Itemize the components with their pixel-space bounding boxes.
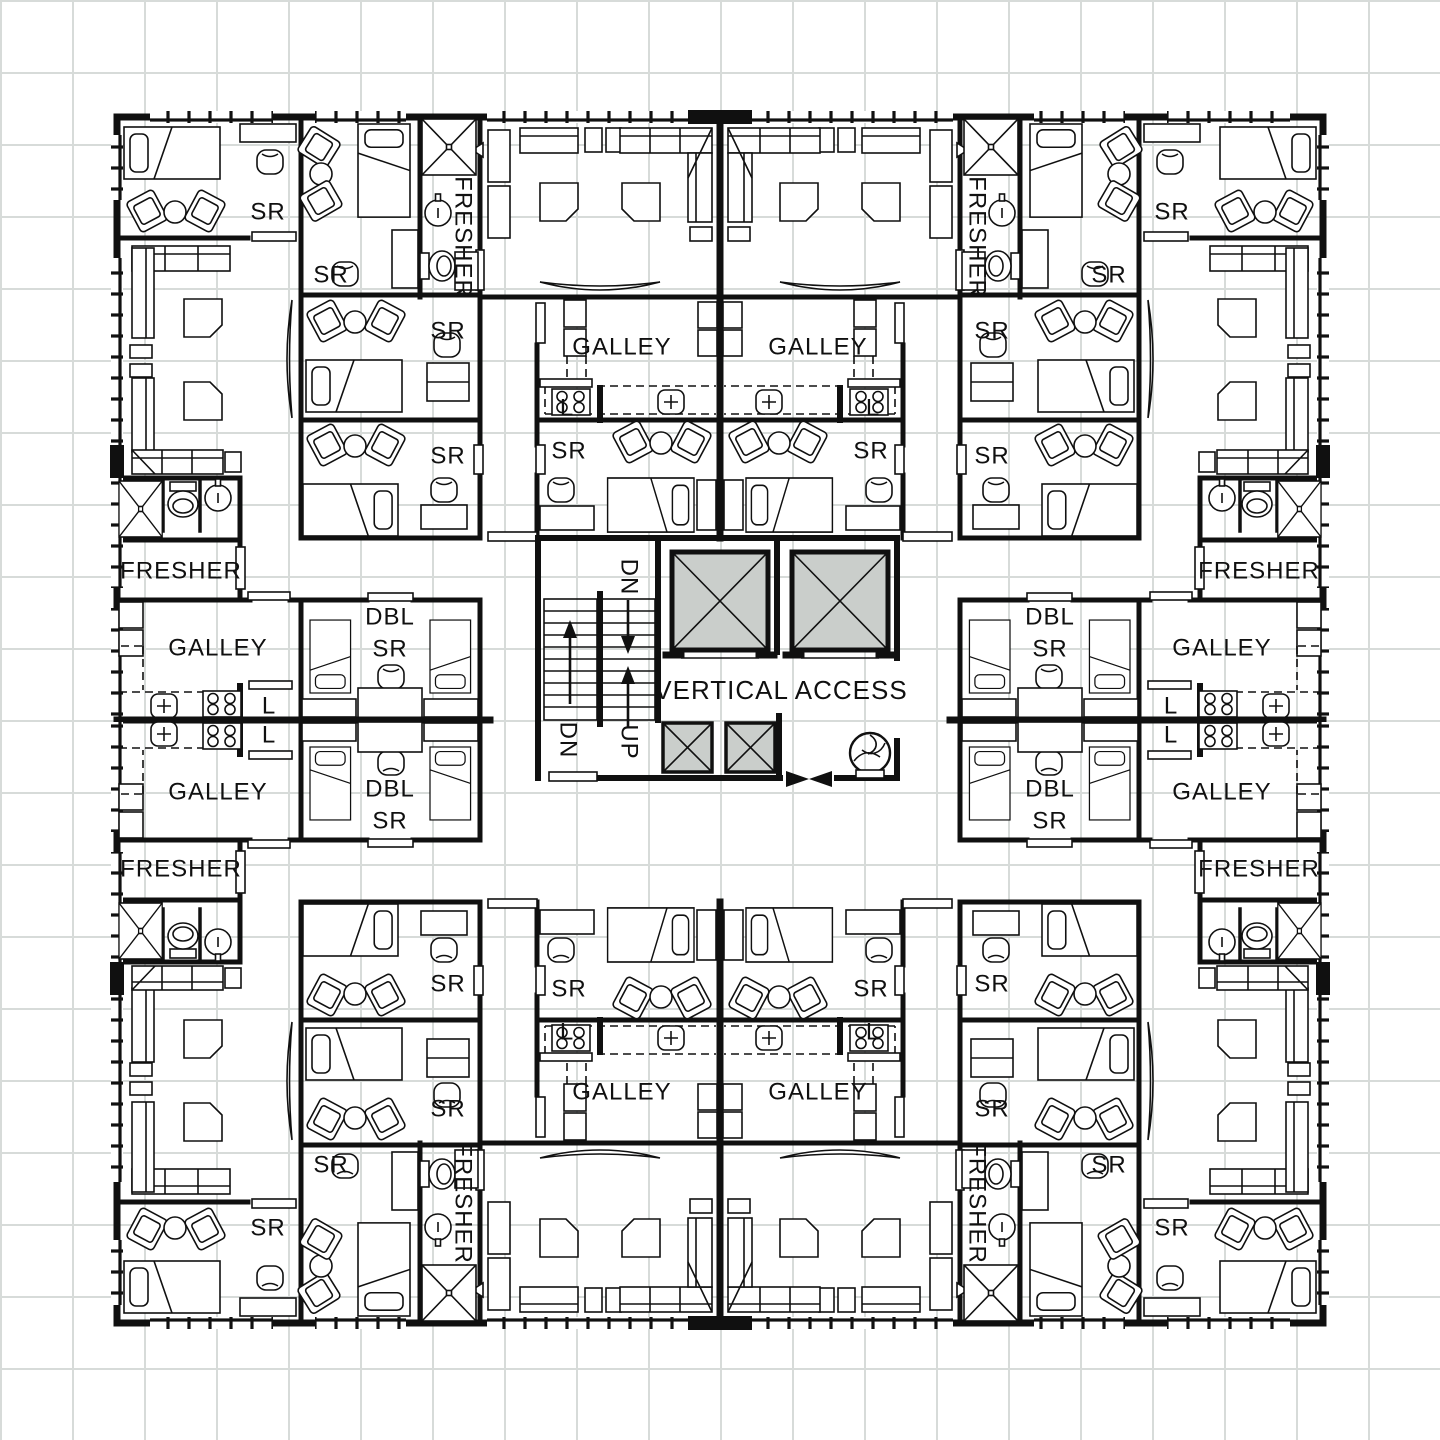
label-dbl: DBL [365,776,415,803]
label-l: L [262,722,276,749]
stove-icon [203,691,241,717]
label-sr: SR [1154,199,1189,226]
label-dn: DN [616,559,643,596]
label-sr: SR [1032,808,1067,835]
bed-icon [303,484,398,536]
label-l: L [866,1019,880,1046]
label-sr: SR [430,1096,465,1123]
label-fresher: FRESHER [120,558,242,585]
chair-icon [257,150,283,174]
label-sr: SR [250,199,285,226]
label-galley: GALLEY [1172,635,1271,662]
label-sr: SR [430,971,465,998]
label-fresher: FRESHER [450,1142,477,1264]
toilet-icon [168,482,198,517]
label-sr: SR [313,1152,348,1179]
label-sr: SR [551,976,586,1003]
label-l: L [1164,693,1178,720]
label-sr: SR [430,318,465,345]
label-l: L [866,395,880,422]
label-sr: SR [313,262,348,289]
table-icon [540,183,578,221]
label-l: L [262,693,276,720]
bed-icon [124,127,220,179]
label-galley: GALLEY [1172,779,1271,806]
table-icon [184,299,222,337]
label-sr: SR [1091,1152,1126,1179]
label-l: L [560,395,574,422]
shower-icon [119,481,162,537]
bed-icon [358,124,410,217]
label-fresher: FRESHER [964,1142,991,1264]
label-sr: SR [1032,636,1067,663]
label-fresher: FRESHER [450,176,477,298]
label-sr: SR [974,443,1009,470]
label-galley: GALLEY [768,1079,867,1106]
label-galley: GALLEY [768,334,867,361]
label-sr: SR [974,971,1009,998]
label-sr: SR [250,1215,285,1242]
label-sr: SR [853,438,888,465]
table-icon [622,183,660,221]
label-galley: GALLEY [572,1079,671,1106]
label-sr: SR [1091,262,1126,289]
bed-icon [310,620,351,693]
label-vertical-access: VERTICAL ACCESS [654,675,907,705]
label-l: L [560,1019,574,1046]
table-icon [184,382,222,420]
bed-icon [306,360,402,412]
label-dbl: DBL [1025,776,1075,803]
label-sr: SR [372,808,407,835]
label-fresher: FRESHER [1198,558,1320,585]
label-galley: GALLEY [168,779,267,806]
label-fresher: FRESHER [120,856,242,883]
sink-icon [658,390,684,414]
label-galley: GALLEY [168,635,267,662]
label-sr: SR [853,976,888,1003]
sink-icon [151,694,177,718]
label-sr: SR [1154,1215,1189,1242]
label-fresher: FRESHER [964,176,991,298]
label-up: UP [616,724,643,759]
floor-plan-page: SRSRSRSRSRSRSRSRSRSRSRSRSRSRSRSRSRSRSRSR… [0,0,1440,1440]
label-galley: GALLEY [572,334,671,361]
label-sr: SR [372,636,407,663]
chair-icon [431,478,457,502]
shower-icon [422,119,476,175]
label-sr: SR [974,318,1009,345]
label-dbl: DBL [365,604,415,631]
label-l: L [1164,722,1178,749]
label-sr: SR [974,1096,1009,1123]
bed-icon [430,620,471,693]
label-fresher: FRESHER [1198,856,1320,883]
label-dn: DN [555,722,582,759]
label-sr: SR [551,438,586,465]
label-dbl: DBL [1025,604,1075,631]
label-sr: SR [430,443,465,470]
chair-icon [378,665,404,689]
bed-icon [608,478,694,532]
floor-plan-drawing: SRSRSRSRSRSRSRSRSRSRSRSRSRSRSRSRSRSRSRSR… [0,0,1440,1440]
chair-icon [548,478,574,502]
